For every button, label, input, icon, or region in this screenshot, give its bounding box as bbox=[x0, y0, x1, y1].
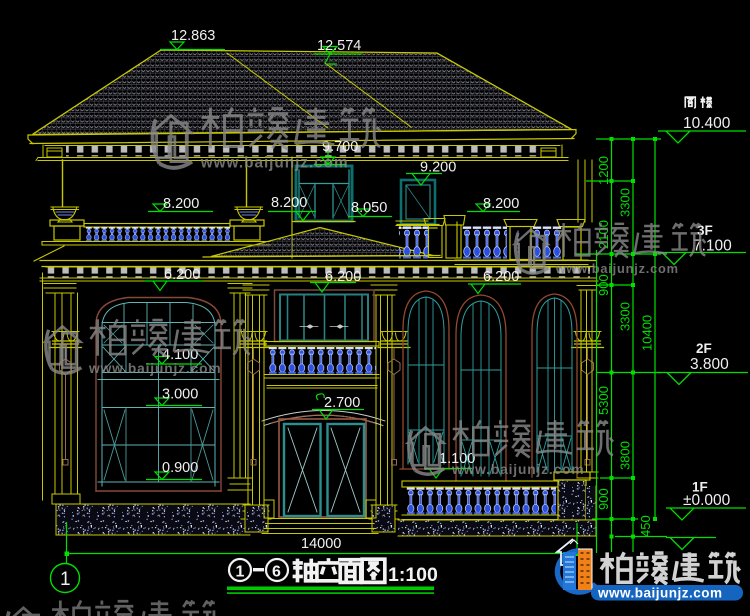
svg-text:6.200: 6.200 bbox=[483, 269, 519, 285]
svg-text:5300: 5300 bbox=[596, 386, 611, 415]
svg-text:8.050: 8.050 bbox=[351, 200, 387, 216]
svg-text:6.200: 6.200 bbox=[164, 267, 200, 283]
svg-text:900: 900 bbox=[596, 488, 611, 510]
svg-text:7.100: 7.100 bbox=[693, 238, 732, 255]
svg-text:8.200: 8.200 bbox=[483, 196, 519, 212]
svg-text:1:100: 1:100 bbox=[388, 564, 438, 586]
svg-text:12.574: 12.574 bbox=[317, 38, 361, 54]
svg-text:1: 1 bbox=[60, 569, 71, 590]
svg-text:9.700: 9.700 bbox=[322, 139, 358, 155]
svg-text:1: 1 bbox=[236, 564, 245, 581]
svg-text:450: 450 bbox=[638, 515, 653, 537]
svg-text:2.700: 2.700 bbox=[324, 395, 360, 411]
svg-text:6.200: 6.200 bbox=[325, 269, 361, 285]
svg-text:www.baijunjz.com: www.baijunjz.com bbox=[597, 586, 723, 601]
svg-text:9.200: 9.200 bbox=[420, 160, 456, 176]
svg-text:12.863: 12.863 bbox=[171, 28, 215, 44]
svg-text:6: 6 bbox=[272, 564, 281, 581]
svg-text:3.800: 3.800 bbox=[690, 356, 729, 373]
svg-text:±0.000: ±0.000 bbox=[683, 492, 731, 509]
svg-text:10400: 10400 bbox=[640, 315, 655, 351]
svg-text:0.900: 0.900 bbox=[162, 460, 198, 476]
svg-text:3800: 3800 bbox=[618, 441, 633, 470]
svg-text:8.200: 8.200 bbox=[271, 195, 307, 211]
svg-text:1200: 1200 bbox=[596, 156, 611, 185]
svg-text:900: 900 bbox=[596, 274, 611, 296]
svg-text:14000: 14000 bbox=[301, 536, 341, 552]
svg-text:3300: 3300 bbox=[618, 188, 633, 217]
svg-text:3.000: 3.000 bbox=[162, 387, 198, 403]
svg-text:2F: 2F bbox=[696, 341, 712, 356]
svg-text:3300: 3300 bbox=[618, 302, 633, 331]
svg-text:10.400: 10.400 bbox=[683, 115, 731, 132]
svg-text:8.200: 8.200 bbox=[163, 196, 199, 212]
